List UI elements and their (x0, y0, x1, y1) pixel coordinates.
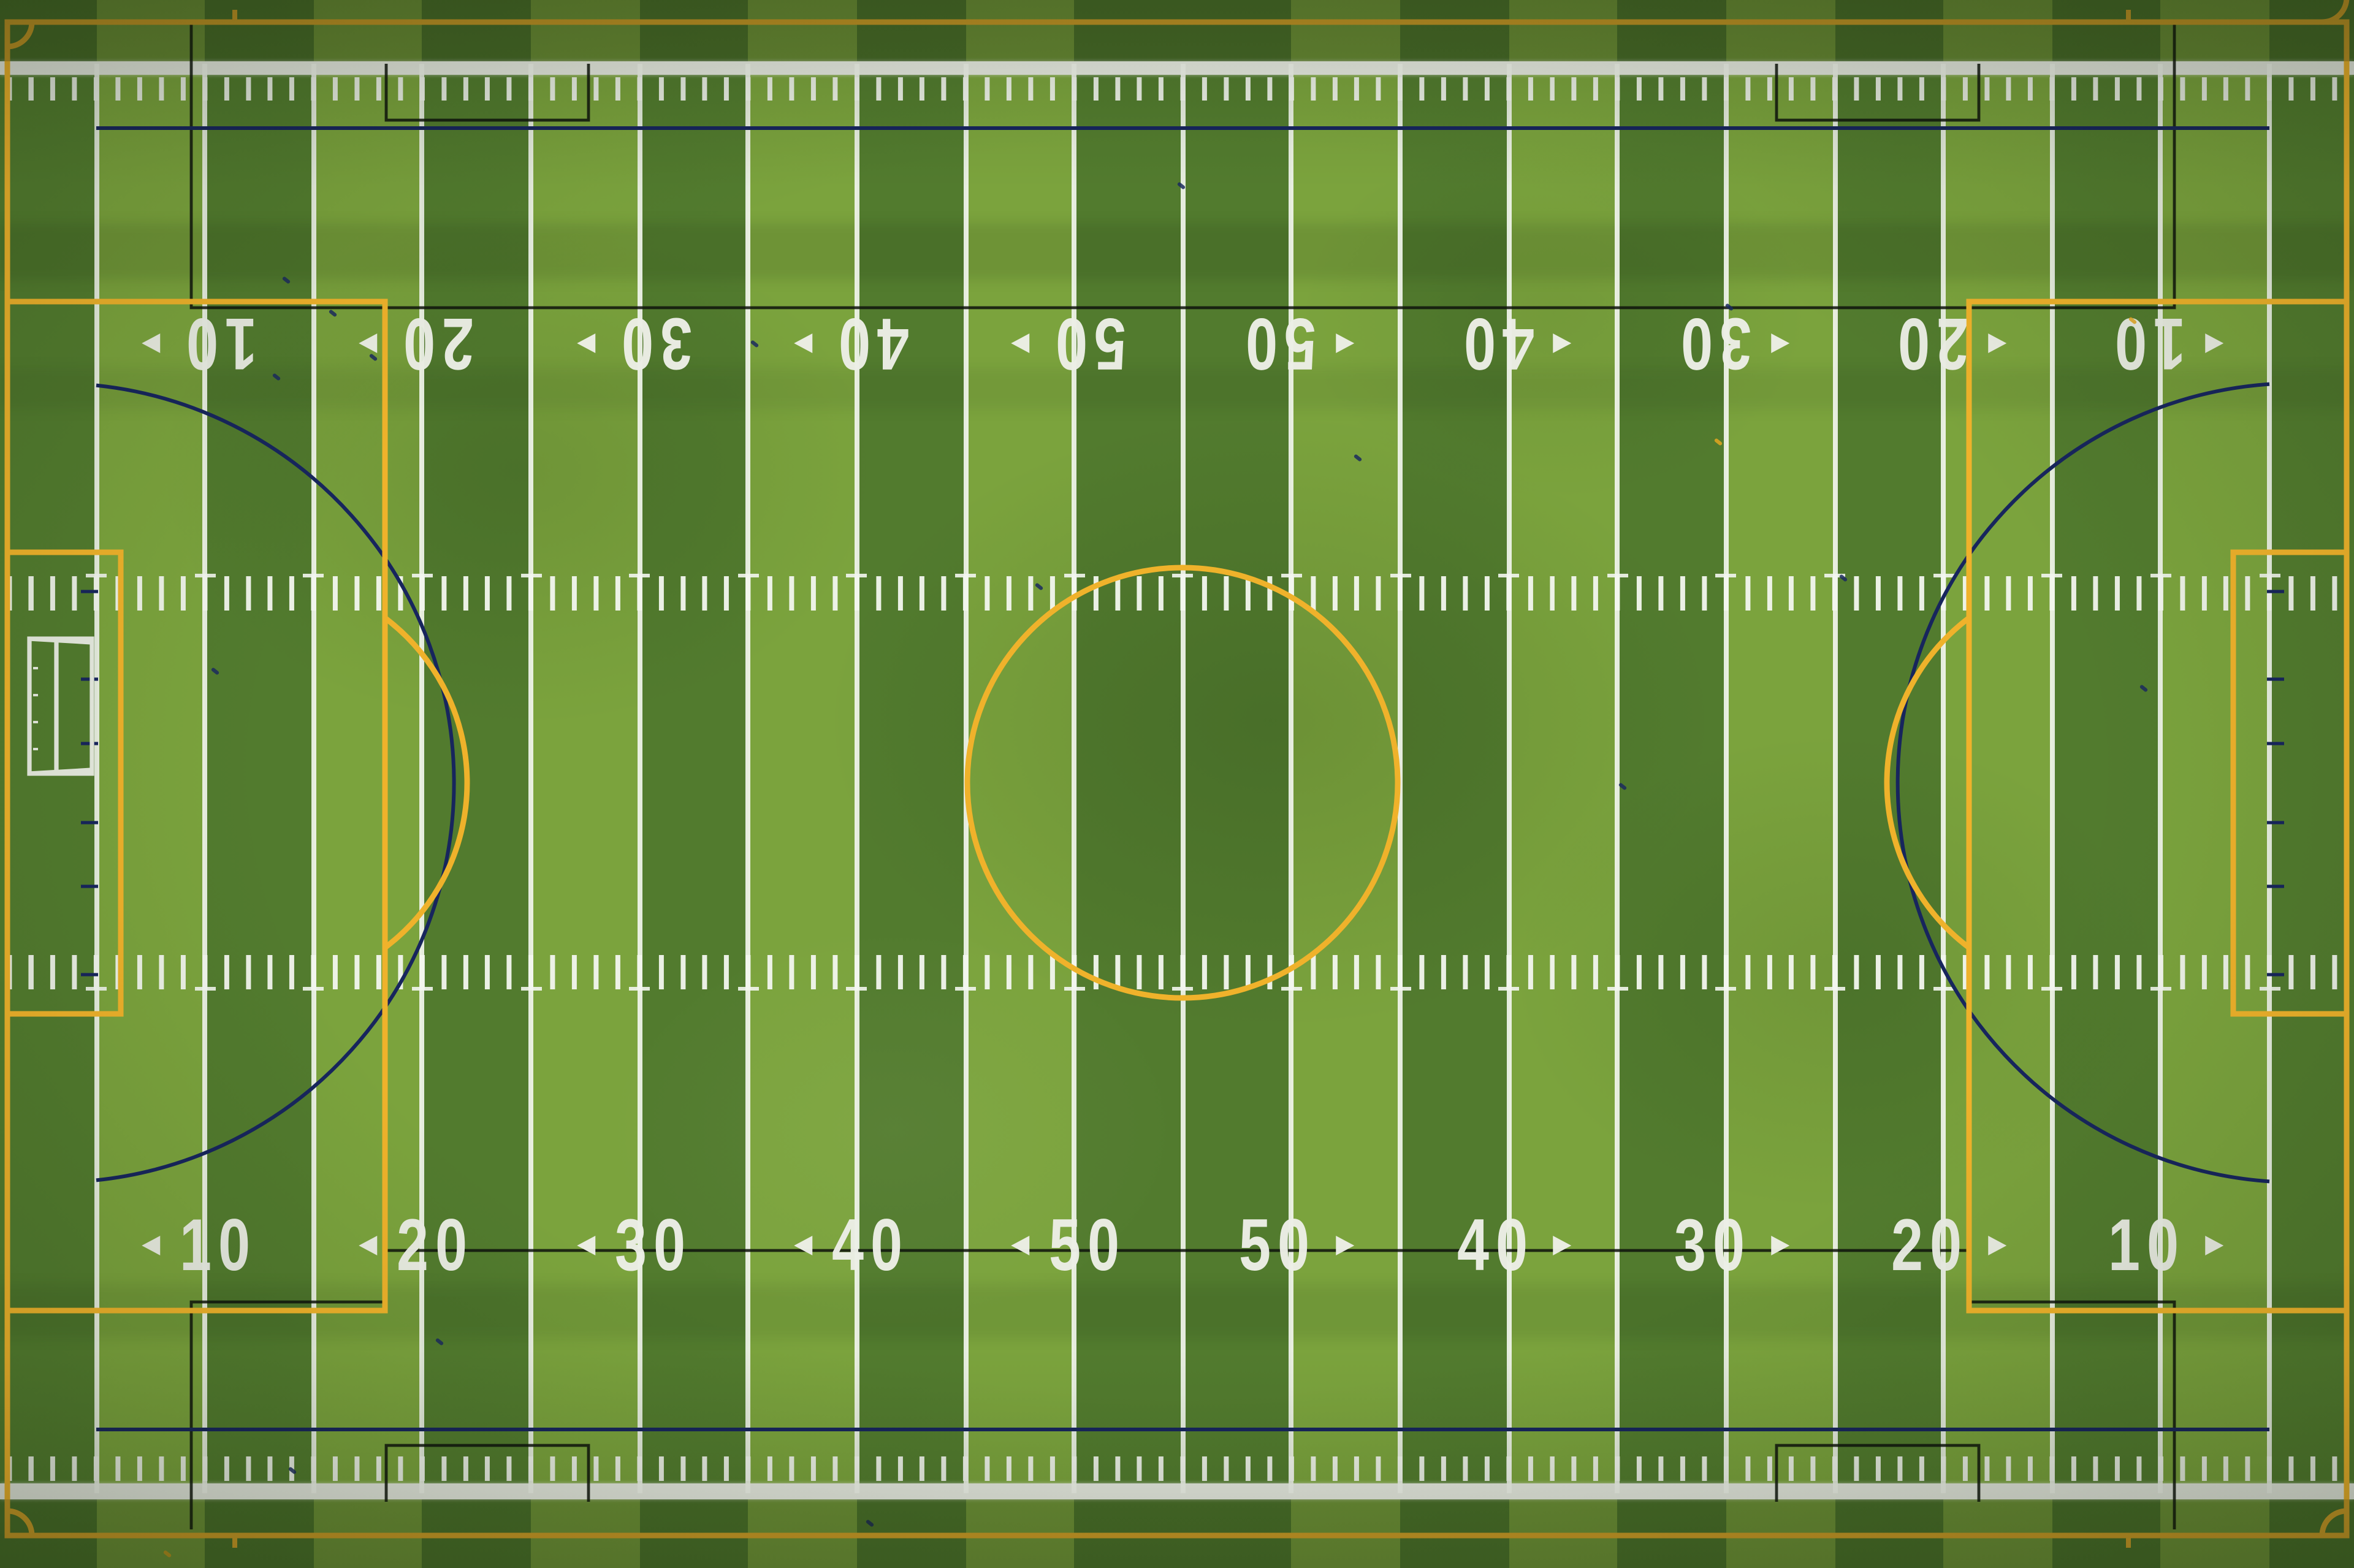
yard-line (963, 64, 968, 1493)
direction-arrow-right-icon (1988, 333, 2006, 353)
yard-line-cross-tick (520, 987, 541, 991)
direction-arrow-right-icon (2206, 1236, 2224, 1255)
yard-number-bottom-20: 20 (359, 1209, 486, 1282)
turf-stripe (1400, 0, 1509, 1568)
direction-arrow-right-icon (1553, 333, 1572, 353)
turf-stripe (2052, 0, 2161, 1568)
yard-line-cross-tick (412, 987, 433, 991)
yard-number-top-20: 20 (359, 306, 486, 380)
direction-arrow-left-icon (794, 333, 812, 353)
turf-stripe (748, 0, 857, 1568)
yard-number-bottom-20: 20 (1881, 1209, 2007, 1282)
yard-number-label: 10 (180, 306, 257, 380)
yard-number-bottom-30: 30 (1663, 1209, 1789, 1282)
yard-line-cross-tick (1716, 574, 1737, 577)
yard-number-top-40: 40 (1446, 306, 1572, 380)
yard-number-label: 50 (1240, 306, 1317, 380)
aerial-football-field-photo: 1020304050504030201010203040505040302010 (0, 0, 2354, 1568)
turf-stripe (2161, 0, 2269, 1568)
yard-line-cross-tick (955, 574, 976, 577)
yard-line-cross-tick (303, 987, 324, 991)
yard-line-cross-tick (1498, 574, 1519, 577)
yard-line-cross-tick (1390, 987, 1411, 991)
yard-line-cross-tick (1390, 574, 1411, 577)
turf-stripe (531, 0, 639, 1568)
sideline-bottom (0, 1483, 2354, 1499)
direction-arrow-left-icon (794, 1236, 812, 1255)
yard-line-cross-tick (738, 987, 759, 991)
yard-number-label: 40 (1457, 1209, 1534, 1282)
turf-stripe (1509, 0, 1617, 1568)
yard-line-cross-tick (2259, 987, 2280, 991)
yard-line-cross-tick (1281, 987, 1302, 991)
yard-number-top-50: 50 (1228, 306, 1355, 380)
yard-number-label: 30 (1674, 306, 1751, 380)
yard-line-cross-tick (520, 574, 541, 577)
yard-line (1181, 64, 1186, 1493)
turf-stripe (1943, 0, 2052, 1568)
yard-number-top-30: 30 (1663, 306, 1789, 380)
yard-line-cross-tick (629, 574, 650, 577)
yard-number-label: 10 (180, 1209, 257, 1282)
turf-stripe (96, 0, 205, 1568)
direction-arrow-right-icon (1988, 1236, 2006, 1255)
direction-arrow-left-icon (359, 333, 378, 353)
yard-line-cross-tick (303, 574, 324, 577)
turf-stripe (639, 0, 748, 1568)
yard-line-cross-tick (1281, 574, 1302, 577)
yard-number-top-20: 20 (1881, 306, 2007, 380)
yard-number-bottom-10: 10 (2098, 1209, 2224, 1282)
yard-line-cross-tick (194, 574, 215, 577)
yard-number-top-50: 50 (1011, 306, 1138, 380)
direction-arrow-right-icon (1553, 1236, 1572, 1255)
hash-mark-row-upper (0, 576, 2354, 611)
yard-number-label: 40 (832, 1209, 909, 1282)
yard-line-cross-tick (1498, 987, 1519, 991)
yard-number-label: 40 (1457, 306, 1534, 380)
yard-number-label: 20 (397, 306, 474, 380)
yard-line-cross-tick (2042, 987, 2063, 991)
yard-number-top-10: 10 (2098, 306, 2224, 380)
yard-line-cross-tick (738, 574, 759, 577)
yard-line-cross-tick (1173, 987, 1194, 991)
direction-arrow-left-icon (577, 1236, 595, 1255)
direction-arrow-left-icon (577, 333, 595, 353)
direction-arrow-left-icon (142, 333, 161, 353)
yard-line-cross-tick (1607, 987, 1628, 991)
turf-stripe (966, 0, 1074, 1568)
yard-line (1615, 64, 1620, 1493)
direction-arrow-right-icon (2206, 333, 2224, 353)
yard-number-bottom-50: 50 (1228, 1209, 1355, 1282)
yard-line (746, 64, 751, 1493)
direction-arrow-right-icon (1771, 1236, 1789, 1255)
yard-number-top-40: 40 (794, 306, 920, 380)
direction-arrow-left-icon (142, 1236, 161, 1255)
yard-line-cross-tick (1824, 987, 1845, 991)
turf-stripe (0, 0, 96, 1568)
yard-line-cross-tick (86, 987, 107, 991)
yard-line (2267, 64, 2272, 1493)
yard-number-bottom-40: 40 (1446, 1209, 1572, 1282)
direction-arrow-right-icon (1771, 333, 1789, 353)
yard-line-cross-tick (2150, 987, 2171, 991)
turf-stripe (1074, 0, 1183, 1568)
turf-stripe (1183, 0, 1292, 1568)
yard-line-cross-tick (629, 987, 650, 991)
yard-line (2050, 64, 2055, 1493)
yard-number-top-10: 10 (142, 306, 269, 380)
yard-line-cross-tick (1607, 574, 1628, 577)
turf-stripe (1726, 0, 1835, 1568)
direction-arrow-left-icon (1011, 333, 1030, 353)
yard-line-cross-tick (1173, 574, 1194, 577)
yard-number-top-30: 30 (577, 306, 703, 380)
yard-line-cross-tick (847, 987, 867, 991)
yard-line-cross-tick (412, 574, 433, 577)
turf-stripe (205, 0, 313, 1568)
turf-stripe (422, 0, 531, 1568)
yard-number-label: 30 (614, 306, 691, 380)
yard-number-label: 50 (1049, 306, 1126, 380)
yard-line (1398, 64, 1403, 1493)
turf-stripe (1835, 0, 1943, 1568)
turf-stripe (2269, 0, 2354, 1568)
yard-line-cross-tick (955, 987, 976, 991)
yard-line-cross-tick (1064, 987, 1084, 991)
yard-line-cross-tick (2150, 574, 2171, 577)
yard-line-cross-tick (194, 987, 215, 991)
sideline-top (0, 61, 2354, 75)
yard-number-label: 10 (2109, 1209, 2186, 1282)
yard-number-label: 20 (397, 1209, 474, 1282)
direction-arrow-left-icon (1011, 1236, 1030, 1255)
direction-arrow-left-icon (359, 1236, 378, 1255)
yard-number-bottom-10: 10 (142, 1209, 269, 1282)
yard-line-cross-tick (86, 574, 107, 577)
yard-number-label: 30 (1674, 1209, 1751, 1282)
yard-number-label: 20 (1891, 1209, 1968, 1282)
yard-line (311, 64, 316, 1493)
yard-line (94, 64, 99, 1493)
direction-arrow-right-icon (1336, 333, 1355, 353)
sideline-tick-row-top (0, 77, 2354, 101)
yard-number-label: 20 (1891, 306, 1968, 380)
turf-stripe (314, 0, 422, 1568)
turf-stripe (1292, 0, 1400, 1568)
yard-number-label: 40 (832, 306, 909, 380)
sideline-tick-row-bottom (0, 1456, 2354, 1481)
yard-number-label: 30 (614, 1209, 691, 1282)
yard-line (1832, 64, 1837, 1493)
yard-line-cross-tick (1064, 574, 1084, 577)
yard-line-cross-tick (847, 574, 867, 577)
turf-stripe (857, 0, 966, 1568)
yard-line-cross-tick (1716, 987, 1737, 991)
yard-line (528, 64, 533, 1493)
yard-line-cross-tick (2042, 574, 2063, 577)
yard-line-cross-tick (1933, 987, 1954, 991)
yard-number-label: 50 (1049, 1209, 1126, 1282)
yard-number-bottom-40: 40 (794, 1209, 920, 1282)
yard-number-bottom-50: 50 (1011, 1209, 1138, 1282)
hash-mark-row-lower (0, 955, 2354, 989)
yard-line-cross-tick (1933, 574, 1954, 577)
yard-number-label: 50 (1240, 1209, 1317, 1282)
yard-number-bottom-30: 30 (577, 1209, 703, 1282)
turf-stripe (1618, 0, 1726, 1568)
yard-number-label: 10 (2109, 306, 2186, 380)
direction-arrow-right-icon (1336, 1236, 1355, 1255)
yard-line-cross-tick (2259, 574, 2280, 577)
